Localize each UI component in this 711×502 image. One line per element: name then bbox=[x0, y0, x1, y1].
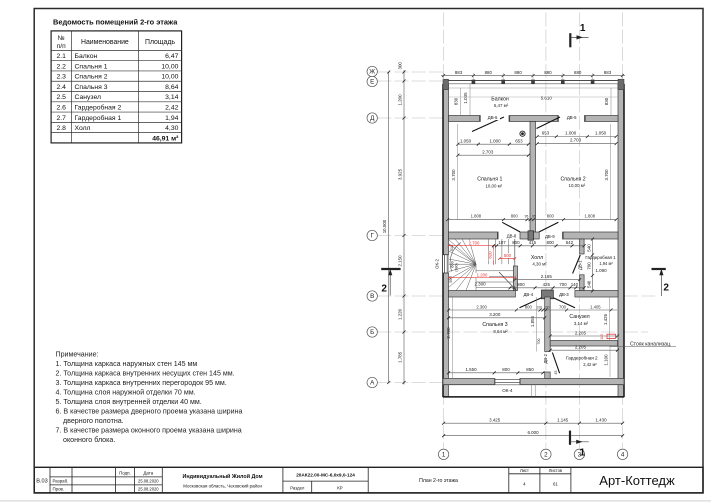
svg-text:8,64: 8,64 bbox=[165, 84, 178, 91]
svg-text:ДВ-1: ДВ-1 bbox=[578, 260, 583, 270]
svg-text:2.700: 2.700 bbox=[469, 240, 480, 245]
svg-text:ОК-2: ОК-2 bbox=[434, 259, 439, 269]
svg-text:Лист: Лист bbox=[520, 468, 529, 473]
svg-text:2.8: 2.8 bbox=[56, 125, 66, 132]
svg-text:6. В качестве размера дверного: 6. В качестве размера дверного проема ук… bbox=[56, 408, 243, 416]
svg-text:В: В bbox=[370, 293, 374, 300]
svg-text:ДВ-8: ДВ-8 bbox=[507, 234, 517, 239]
svg-text:1.808: 1.808 bbox=[471, 213, 482, 218]
svg-text:100: 100 bbox=[537, 305, 543, 309]
svg-text:700: 700 bbox=[587, 262, 592, 270]
svg-text:2.165: 2.165 bbox=[541, 274, 553, 279]
svg-text:ДВ-2: ДВ-2 bbox=[543, 353, 548, 363]
svg-text:ДВ-9: ДВ-9 bbox=[545, 234, 555, 239]
svg-text:115: 115 bbox=[600, 334, 604, 340]
svg-text:Площадь: Площадь bbox=[145, 39, 175, 46]
svg-text:2: 2 bbox=[663, 282, 669, 293]
svg-text:540: 540 bbox=[587, 244, 592, 252]
svg-text:1.200: 1.200 bbox=[398, 94, 403, 106]
svg-text:1: 1 bbox=[442, 452, 446, 459]
svg-text:5. Толщина слоя внутренней отд: 5. Толщина слоя внутренней отделки 40 мм… bbox=[56, 398, 202, 406]
svg-text:3.700: 3.700 bbox=[451, 169, 456, 181]
svg-text:Балкон: Балкон bbox=[75, 53, 98, 60]
svg-text:10,00: 10,00 bbox=[161, 74, 178, 81]
svg-text:300: 300 bbox=[398, 62, 403, 70]
svg-text:500: 500 bbox=[504, 253, 512, 258]
svg-text:Спальня 3: Спальня 3 bbox=[482, 322, 507, 328]
svg-text:2.5: 2.5 bbox=[56, 94, 66, 101]
svg-text:Холл: Холл bbox=[531, 255, 543, 261]
svg-text:20АК22.00-МС-6,0х9,0-124: 20АК22.00-МС-6,0х9,0-124 bbox=[296, 473, 355, 478]
svg-text:100: 100 bbox=[544, 305, 550, 309]
svg-text:План 2-го этажа: План 2-го этажа bbox=[419, 478, 458, 484]
svg-text:7. В качестве размера оконного: 7. В качестве размера оконного проема ук… bbox=[56, 427, 242, 435]
svg-text:Д: Д bbox=[370, 115, 375, 122]
svg-text:2.7: 2.7 bbox=[56, 115, 66, 122]
svg-text:дверного полотна.: дверного полотна. bbox=[63, 417, 124, 425]
svg-text:В.03: В.03 bbox=[36, 479, 48, 485]
svg-text:61: 61 bbox=[553, 482, 558, 487]
svg-text:ДВ-3: ДВ-3 bbox=[559, 292, 569, 297]
svg-text:Е: Е bbox=[370, 79, 374, 86]
svg-text:6,47: 6,47 bbox=[165, 53, 178, 60]
svg-text:800: 800 bbox=[525, 304, 533, 309]
svg-text:542: 542 bbox=[566, 240, 574, 245]
svg-text:1.430: 1.430 bbox=[595, 417, 607, 422]
svg-text:1.050: 1.050 bbox=[460, 139, 472, 144]
svg-text:653: 653 bbox=[515, 139, 523, 144]
svg-text:25.08.2020: 25.08.2020 bbox=[138, 479, 159, 484]
svg-text:2.700: 2.700 bbox=[446, 327, 451, 339]
svg-text:3. Толщина каркаса внутренних: 3. Толщина каркаса внутренних перегородо… bbox=[56, 379, 227, 387]
svg-text:1.145: 1.145 bbox=[557, 417, 569, 422]
svg-text:Разраб.: Разраб. bbox=[53, 479, 69, 484]
svg-text:883: 883 bbox=[455, 70, 463, 75]
svg-text:2.205: 2.205 bbox=[575, 330, 587, 335]
svg-text:Примечание:: Примечание: bbox=[56, 351, 99, 359]
svg-text:1.000: 1.000 bbox=[489, 139, 501, 144]
svg-text:5.610: 5.610 bbox=[541, 96, 553, 101]
svg-text:25.08.2020: 25.08.2020 bbox=[138, 487, 159, 492]
svg-text:1.090: 1.090 bbox=[595, 268, 607, 273]
svg-text:10.500: 10.500 bbox=[382, 219, 387, 233]
svg-text:415: 415 bbox=[529, 240, 537, 245]
svg-text:10,00 м²: 10,00 м² bbox=[569, 183, 586, 188]
svg-text:1.000: 1.000 bbox=[565, 131, 577, 136]
svg-text:Подп.: Подп. bbox=[119, 471, 131, 476]
svg-text:800: 800 bbox=[517, 282, 525, 287]
svg-text:Гардеробная 1: Гардеробная 1 bbox=[75, 114, 122, 122]
svg-text:№: № bbox=[58, 35, 65, 42]
svg-text:Холл: Холл bbox=[75, 125, 91, 132]
svg-text:800: 800 bbox=[547, 213, 555, 218]
svg-text:653: 653 bbox=[542, 131, 550, 136]
svg-text:Спальня 1: Спальня 1 bbox=[75, 63, 108, 70]
svg-text:880: 880 bbox=[485, 70, 493, 75]
svg-text:Раздел: Раздел bbox=[290, 486, 305, 491]
svg-text:ДВ-5: ДВ-5 bbox=[567, 115, 577, 120]
svg-text:Листов: Листов bbox=[549, 468, 562, 473]
svg-text:Г: Г bbox=[370, 233, 374, 240]
svg-text:оконного блока.: оконного блока. bbox=[63, 436, 115, 444]
svg-text:10,00: 10,00 bbox=[161, 63, 178, 70]
svg-text:1. Толщина каркаса наружных ст: 1. Толщина каркаса наружных стен 145 мм bbox=[56, 360, 198, 368]
svg-text:8,64 м²: 8,64 м² bbox=[493, 329, 508, 334]
svg-text:2.1: 2.1 bbox=[56, 53, 66, 60]
svg-text:850: 850 bbox=[526, 367, 534, 372]
svg-text:46,91 м²: 46,91 м² bbox=[152, 135, 179, 142]
svg-text:1,94 м²: 1,94 м² bbox=[599, 261, 613, 266]
svg-text:800: 800 bbox=[502, 367, 510, 372]
svg-text:10,00 м²: 10,00 м² bbox=[485, 183, 502, 188]
svg-text:1: 1 bbox=[579, 446, 585, 458]
svg-text:880: 880 bbox=[544, 70, 552, 75]
svg-text:45: 45 bbox=[554, 371, 558, 375]
svg-text:540: 540 bbox=[587, 280, 592, 288]
svg-text:883: 883 bbox=[604, 70, 612, 75]
svg-text:2.205: 2.205 bbox=[575, 345, 587, 350]
svg-text:Пров.: Пров. bbox=[53, 487, 65, 492]
svg-text:Санузел: Санузел bbox=[569, 314, 589, 320]
svg-text:2.150: 2.150 bbox=[398, 255, 403, 267]
svg-text:800: 800 bbox=[511, 213, 519, 218]
svg-text:1.200: 1.200 bbox=[477, 272, 488, 277]
svg-text:2.2: 2.2 bbox=[56, 63, 66, 70]
svg-text:2.703: 2.703 bbox=[482, 150, 494, 155]
svg-text:4,30 м²: 4,30 м² bbox=[532, 262, 547, 267]
svg-text:2,42 м²: 2,42 м² bbox=[583, 362, 597, 367]
svg-text:Б: Б bbox=[370, 329, 374, 336]
svg-text:3.200: 3.200 bbox=[489, 312, 501, 317]
svg-text:800: 800 bbox=[546, 240, 554, 245]
svg-text:3.425: 3.425 bbox=[489, 417, 501, 422]
svg-text:ДВ-6: ДВ-6 bbox=[488, 115, 498, 120]
svg-text:95: 95 bbox=[525, 214, 529, 218]
svg-text:Спальня 2: Спальня 2 bbox=[561, 177, 586, 183]
svg-text:2.703: 2.703 bbox=[570, 137, 582, 142]
svg-text:1.808: 1.808 bbox=[585, 213, 596, 218]
svg-text:6,47 м²: 6,47 м² bbox=[494, 103, 509, 108]
svg-text:Балкон: Балкон bbox=[491, 97, 509, 103]
svg-text:700: 700 bbox=[537, 339, 541, 345]
svg-text:Индивидуальный Жилой Дом: Индивидуальный Жилой Дом bbox=[183, 473, 263, 480]
svg-text:2.300: 2.300 bbox=[474, 282, 486, 287]
svg-text:Ведомость помещений 2-го этажа: Ведомость помещений 2-го этажа bbox=[53, 17, 178, 26]
svg-text:Гардеробная 2: Гардеробная 2 bbox=[75, 104, 122, 112]
svg-text:2: 2 bbox=[544, 452, 548, 459]
svg-text:425: 425 bbox=[543, 282, 551, 287]
svg-text:3.925: 3.925 bbox=[398, 168, 403, 180]
svg-text:1.785: 1.785 bbox=[398, 351, 403, 363]
svg-text:95: 95 bbox=[532, 214, 536, 218]
svg-text:КР: КР bbox=[337, 486, 343, 491]
svg-text:1.220: 1.220 bbox=[398, 308, 403, 320]
svg-text:Московская область, Чеховский: Московская область, Чеховский район bbox=[183, 484, 262, 489]
svg-text:1.405: 1.405 bbox=[590, 304, 601, 309]
svg-text:1.035: 1.035 bbox=[463, 92, 468, 104]
svg-text:Арт-Коттедж: Арт-Коттедж bbox=[599, 473, 675, 488]
svg-text:ОК-4: ОК-4 bbox=[502, 388, 513, 393]
svg-text:830: 830 bbox=[454, 97, 459, 105]
svg-text:1.550: 1.550 bbox=[465, 367, 477, 372]
svg-text:4. Толщина слоя наружной отдел: 4. Толщина слоя наружной отделки 70 мм. bbox=[56, 389, 196, 397]
svg-text:Наименование: Наименование bbox=[81, 39, 129, 46]
svg-text:Гардеробная 1: Гардеробная 1 bbox=[585, 255, 616, 260]
svg-text:Спальня 2: Спальня 2 bbox=[75, 74, 108, 81]
svg-text:140: 140 bbox=[571, 282, 579, 287]
svg-text:3.700: 3.700 bbox=[604, 169, 609, 181]
svg-text:п/п: п/п bbox=[57, 43, 66, 50]
svg-text:(380): (380) bbox=[454, 263, 458, 271]
svg-text:800: 800 bbox=[512, 240, 520, 245]
svg-text:2,42: 2,42 bbox=[165, 105, 178, 112]
svg-text:1.426: 1.426 bbox=[603, 313, 608, 325]
svg-text:2.3: 2.3 bbox=[56, 74, 66, 81]
svg-text:3,14: 3,14 bbox=[165, 94, 178, 101]
svg-text:6.000: 6.000 bbox=[527, 430, 539, 435]
svg-text:Спальня 1: Спальня 1 bbox=[477, 177, 502, 183]
svg-text:1: 1 bbox=[580, 23, 586, 34]
svg-text:1.100: 1.100 bbox=[603, 354, 608, 366]
svg-text:3,14 м²: 3,14 м² bbox=[574, 321, 589, 326]
svg-text:1.050: 1.050 bbox=[595, 131, 607, 136]
svg-text:Гардеробная 2: Гардеробная 2 bbox=[566, 355, 598, 360]
svg-text:2: 2 bbox=[381, 284, 387, 295]
svg-text:4,30: 4,30 bbox=[165, 125, 178, 132]
svg-text:1.855: 1.855 bbox=[530, 315, 535, 327]
svg-text:4: 4 bbox=[621, 452, 625, 459]
svg-text:107: 107 bbox=[498, 240, 506, 245]
svg-text:830: 830 bbox=[604, 97, 609, 105]
svg-text:Дата: Дата bbox=[143, 471, 153, 476]
svg-text:2.6: 2.6 bbox=[56, 105, 66, 112]
svg-text:700: 700 bbox=[559, 282, 567, 287]
svg-text:880: 880 bbox=[574, 70, 582, 75]
svg-text:1,94: 1,94 bbox=[165, 115, 178, 122]
svg-text:700: 700 bbox=[559, 304, 567, 309]
svg-text:Спальня 3: Спальня 3 bbox=[75, 84, 108, 91]
svg-text:820: 820 bbox=[488, 251, 493, 259]
svg-text:ДВ-4: ДВ-4 bbox=[523, 292, 533, 297]
svg-text:Стояк канализац.: Стояк канализац. bbox=[630, 341, 671, 347]
svg-text:Ж: Ж bbox=[369, 69, 375, 76]
svg-text:880: 880 bbox=[514, 70, 522, 75]
svg-text:Санузел: Санузел bbox=[75, 94, 102, 101]
svg-text:2.4: 2.4 bbox=[56, 84, 66, 91]
svg-text:2.300: 2.300 bbox=[476, 304, 487, 309]
svg-text:2. Толщина каркаса внутренних: 2. Толщина каркаса внутренних несущих ст… bbox=[56, 370, 235, 378]
